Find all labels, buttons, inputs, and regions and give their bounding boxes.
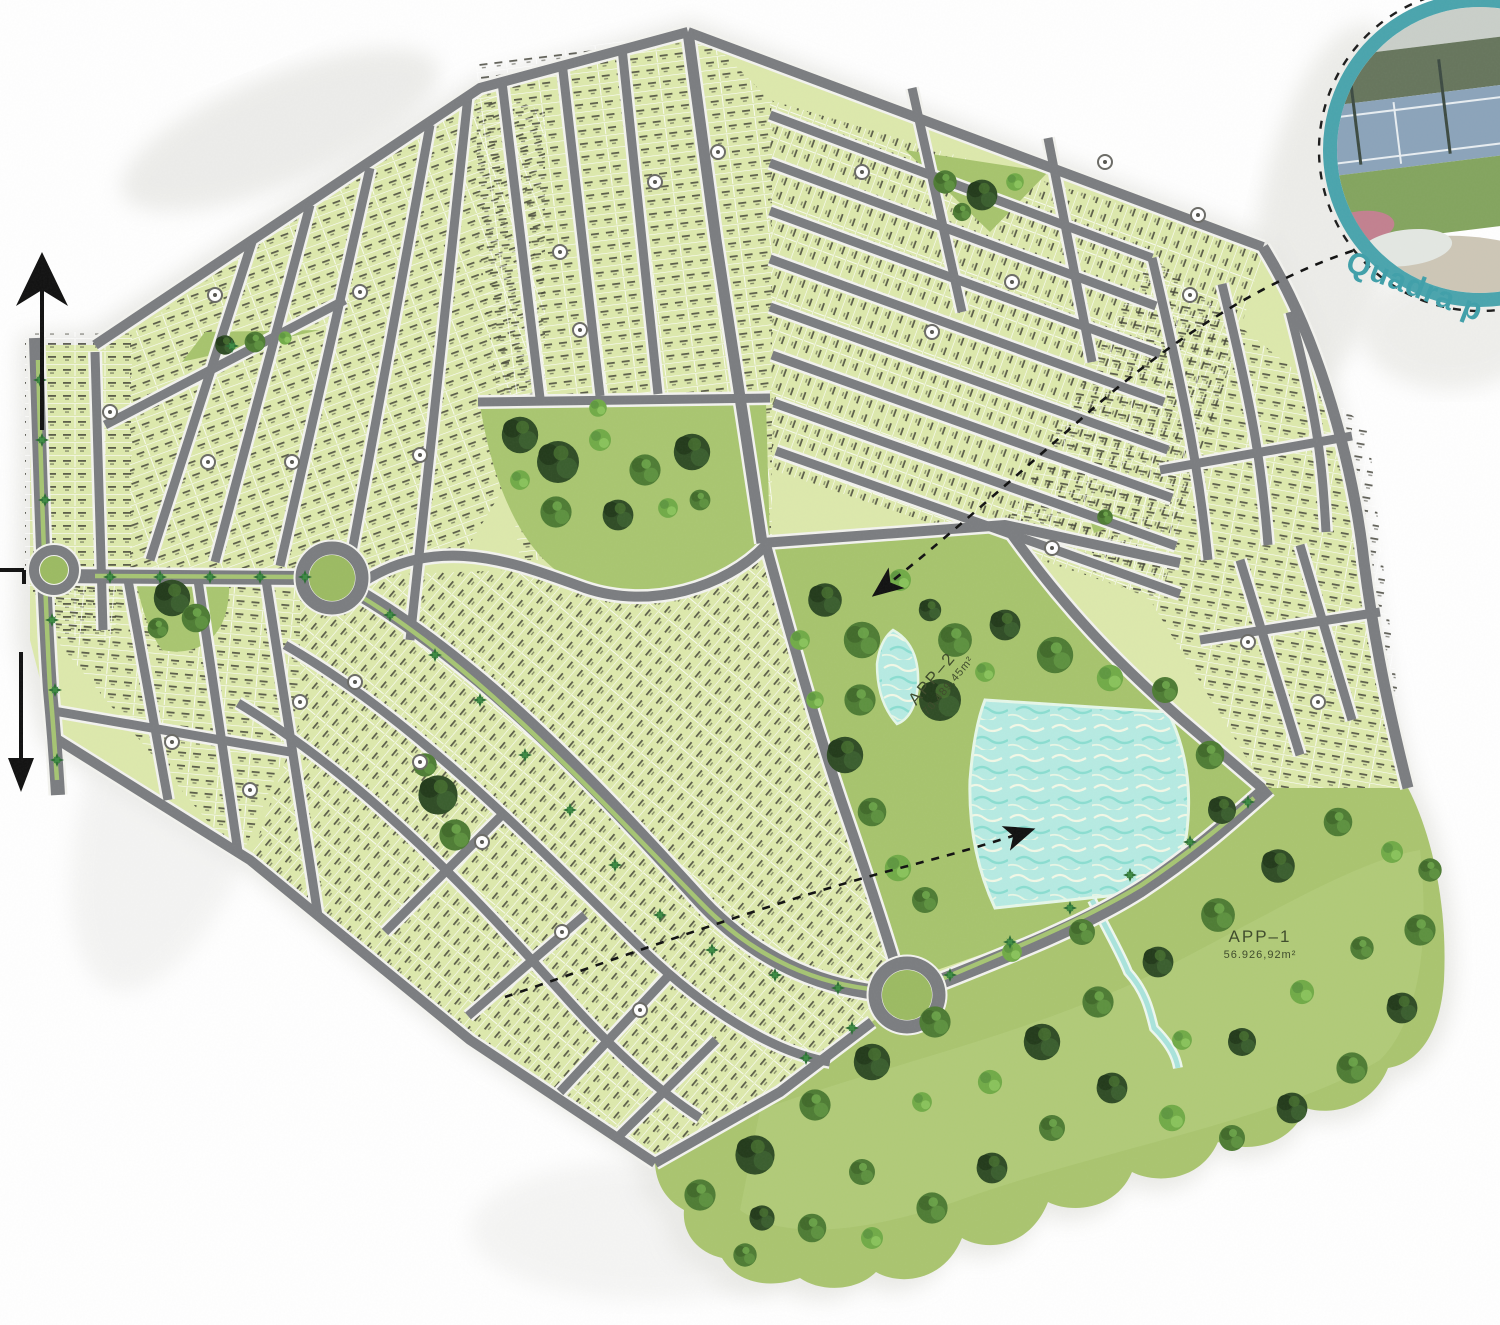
paper-grain-overlay: [0, 0, 1500, 1325]
site-plan-page: APP–2 70.489,45m² APP–1 56.926,92m²: [0, 0, 1500, 1325]
site-plan-map: APP–2 70.489,45m² APP–1 56.926,92m²: [0, 0, 1500, 1325]
